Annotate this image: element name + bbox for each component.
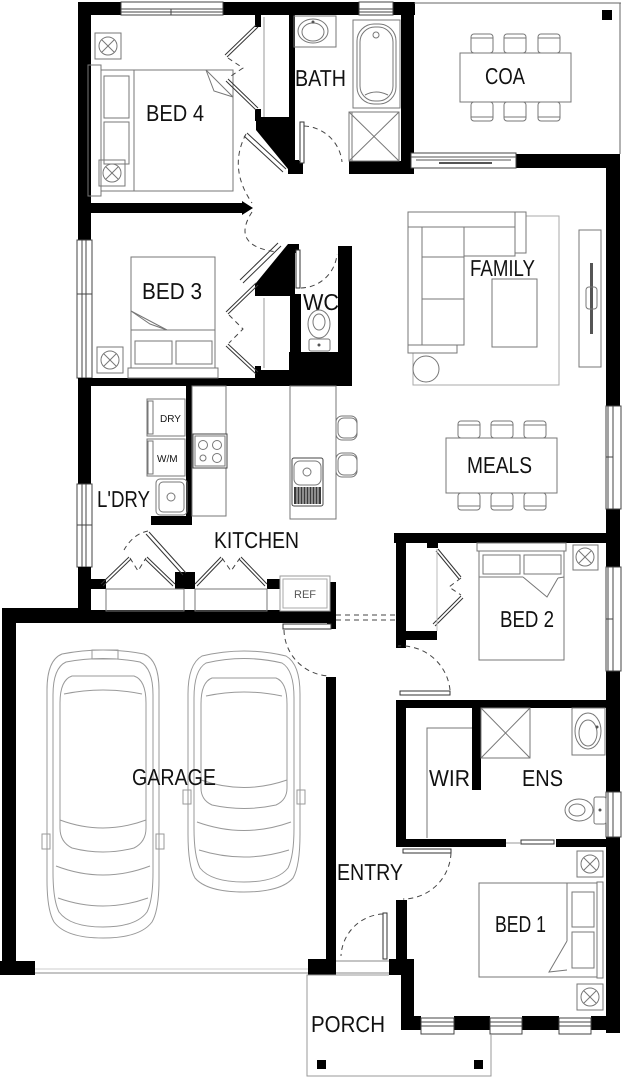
svg-text:L'DRY: L'DRY [97, 486, 150, 512]
svg-text:ENTRY: ENTRY [337, 859, 403, 885]
svg-text:BATH: BATH [295, 65, 346, 91]
svg-text:DRY: DRY [160, 414, 181, 425]
svg-text:W/M: W/M [157, 454, 178, 465]
svg-text:COA: COA [485, 63, 526, 89]
svg-text:FAMILY: FAMILY [470, 255, 535, 281]
svg-text:MEALS: MEALS [467, 452, 532, 478]
svg-text:REF: REF [294, 589, 316, 601]
svg-text:BED 2: BED 2 [500, 606, 554, 632]
svg-text:BED 1: BED 1 [495, 911, 546, 937]
svg-text:BED 4: BED 4 [146, 100, 204, 126]
svg-text:BED 3: BED 3 [142, 278, 202, 304]
svg-text:PORCH: PORCH [311, 1011, 385, 1037]
svg-text:WC: WC [303, 289, 339, 315]
svg-text:KITCHEN: KITCHEN [214, 527, 299, 553]
svg-text:GARAGE: GARAGE [132, 764, 216, 790]
svg-text:WIR: WIR [429, 765, 470, 791]
svg-text:ENS: ENS [522, 765, 563, 791]
